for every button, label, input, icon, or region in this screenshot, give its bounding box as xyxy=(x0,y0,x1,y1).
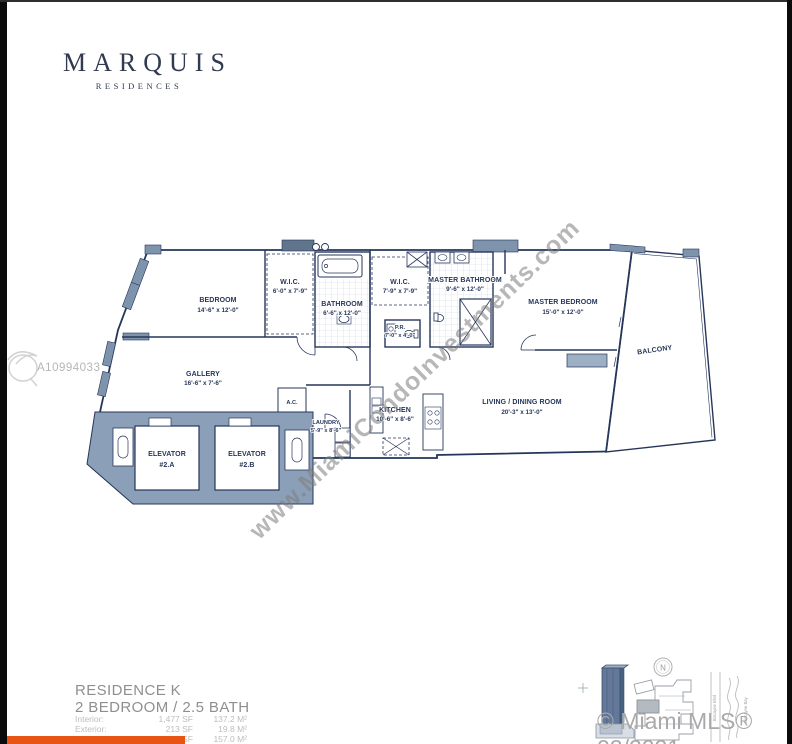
marquis-logo: MARQUIS RESIDENCES xyxy=(63,48,223,91)
area-row-exterior: Exterior: 213 SF 19.8 M² xyxy=(75,724,255,734)
living-dining-label: LIVING / DINING ROOM xyxy=(482,399,561,406)
bedroom-label: BEDROOM xyxy=(199,297,236,304)
residence-name: RESIDENCE K xyxy=(75,682,181,699)
exterior-sf: 213 SF xyxy=(135,724,193,734)
right-black-edge xyxy=(787,0,792,744)
compass-north-label: N xyxy=(660,664,666,673)
interior-m2: 137.2 M² xyxy=(197,714,247,724)
logo-subtitle: RESIDENCES xyxy=(63,81,215,91)
bathtub xyxy=(318,255,362,277)
wic2-dims: 7'-9" x 7'-9" xyxy=(383,288,417,295)
ac-label: A.C. xyxy=(286,400,298,406)
balcony-label: BALCONY xyxy=(637,345,673,357)
interior-label: Interior: xyxy=(75,714,135,724)
laundry-label: LAUNDRY xyxy=(312,420,339,426)
gallery-label: GALLERY xyxy=(186,371,220,378)
bedroom-dims: 14'-6" x 12'-0" xyxy=(197,307,238,314)
accent-orange-bar xyxy=(7,736,185,744)
interior-sf: 1,477 SF xyxy=(135,714,193,724)
total-m2: 157.0 M² xyxy=(197,734,247,744)
top-black-edge xyxy=(0,0,792,2)
mls-logo-watermark-icon xyxy=(4,344,40,390)
elevator-b-number: #2.B xyxy=(239,462,254,469)
bathroom-dims: 6'-6" x 12'-0" xyxy=(323,310,361,317)
linen-closet-x xyxy=(407,252,427,267)
area-row-interior: Interior: 1,477 SF 137.2 M² xyxy=(75,714,255,724)
elevator-a-label: ELEVATOR xyxy=(148,451,186,458)
master-bedroom-console xyxy=(567,354,607,367)
dishwasher-x xyxy=(383,438,409,455)
master-bathroom-label: MASTER BATHROOM xyxy=(428,277,502,284)
master-bathroom-dims: 9'-6" x 12'-0" xyxy=(446,286,484,293)
logo-title: MARQUIS xyxy=(63,48,223,78)
wic1-dims: 6'-0" x 7'-9" xyxy=(273,288,307,295)
wic1-label: W.I.C. xyxy=(280,279,300,286)
master-bedroom-dims: 15'-0" x 12'-0" xyxy=(542,309,583,316)
copyright-watermark: © Miami MLS® 02/2021 xyxy=(597,708,792,744)
elevator-a-number: #2.A xyxy=(159,462,174,469)
pr-dims: 7'-0" x 4'-0" xyxy=(385,333,416,339)
exterior-m2: 19.8 M² xyxy=(197,724,247,734)
living-dining-dims: 20'-3" x 13'-0" xyxy=(501,409,542,416)
gallery-dims: 16'-6" x 7'-6" xyxy=(184,380,222,387)
pr-label: P.R. xyxy=(395,325,406,331)
master-bedroom-label: MASTER BEDROOM xyxy=(528,299,598,306)
bathroom-label: BATHROOM xyxy=(321,301,363,308)
floorplan-page: MARQUIS RESIDENCES A10994033 www.MiamiCo… xyxy=(0,0,792,744)
elevator-b-label: ELEVATOR xyxy=(228,451,266,458)
wic2-label: W.I.C. xyxy=(390,279,410,286)
exterior-label: Exterior: xyxy=(75,724,135,734)
